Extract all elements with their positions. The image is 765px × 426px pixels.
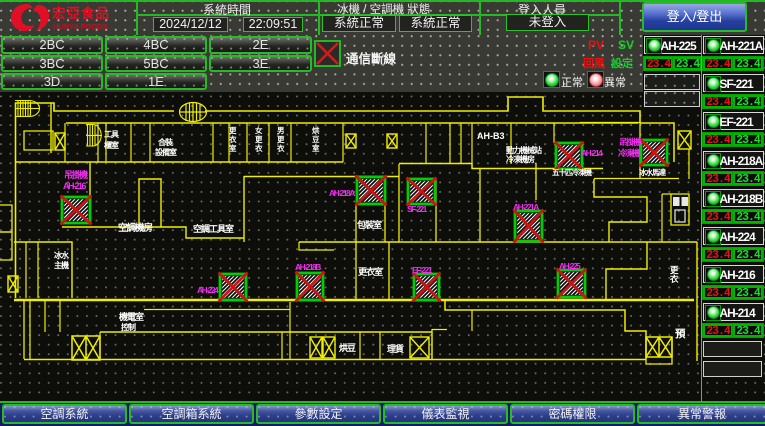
svg-text:主機: 主機 — [54, 260, 69, 270]
svg-text:櫃室: 櫃室 — [104, 140, 119, 150]
svg-text:AH-224: AH-224 — [197, 285, 219, 295]
svg-text:烘: 烘 — [312, 125, 320, 135]
svg-text:更衣室: 更衣室 — [358, 266, 383, 277]
svg-text:衣: 衣 — [255, 143, 263, 153]
svg-text:設備室: 設備室 — [155, 147, 177, 157]
svg-text:空調工具室: 空調工具室 — [193, 223, 234, 234]
svg-text:控制: 控制 — [121, 322, 136, 332]
svg-text:衣: 衣 — [670, 274, 679, 284]
svg-text:冰水馬達: 冰水馬達 — [639, 167, 666, 177]
svg-text:男: 男 — [277, 126, 284, 135]
svg-text:冷凍機房: 冷凍機房 — [506, 154, 535, 164]
svg-text:AH-B3: AH-B3 — [477, 131, 505, 141]
svg-text:女: 女 — [255, 125, 263, 135]
svg-text:冰水: 冰水 — [54, 250, 70, 260]
svg-text:衣: 衣 — [229, 134, 237, 144]
svg-text:AH-221A: AH-221A — [513, 202, 539, 212]
svg-text:預: 預 — [675, 328, 686, 340]
svg-text:AH-225: AH-225 — [559, 261, 581, 271]
svg-text:理貨: 理貨 — [387, 343, 404, 354]
svg-text:室: 室 — [312, 143, 320, 153]
svg-text:宏亞食品: 宏亞食品 — [52, 5, 110, 21]
svg-text:EF-221: EF-221 — [412, 265, 433, 275]
svg-text:五十匹冷凍機: 五十匹冷凍機 — [552, 167, 592, 177]
svg-text:更: 更 — [255, 135, 263, 144]
svg-text:工具: 工具 — [104, 130, 119, 139]
svg-text:AH-216: AH-216 — [63, 181, 87, 191]
svg-text:AH-218A: AH-218A — [329, 188, 355, 198]
svg-text:AH-218B: AH-218B — [295, 262, 321, 272]
svg-text:包裝室: 包裝室 — [356, 219, 382, 230]
svg-text:機電室: 機電室 — [119, 311, 144, 322]
svg-text:合裝: 合裝 — [157, 137, 174, 147]
svg-text:動力機械站: 動力機械站 — [506, 145, 542, 155]
svg-text:烘豆: 烘豆 — [339, 342, 356, 353]
svg-text:空調機房: 空調機房 — [118, 222, 153, 234]
svg-text:室: 室 — [229, 143, 237, 153]
svg-text:更: 更 — [277, 135, 285, 144]
svg-text:吊掛機: 吊掛機 — [64, 169, 88, 180]
svg-text:更: 更 — [229, 126, 237, 135]
svg-text:衣: 衣 — [277, 143, 285, 153]
svg-text:AH-214: AH-214 — [581, 148, 603, 158]
svg-text:吊掛機: 吊掛機 — [619, 137, 642, 147]
svg-text:豆: 豆 — [312, 135, 320, 144]
svg-text:冷凍機: 冷凍機 — [618, 148, 641, 158]
svg-text:HUNYA FOODS: HUNYA FOODS — [53, 22, 107, 31]
svg-text:SF-221: SF-221 — [407, 204, 428, 214]
